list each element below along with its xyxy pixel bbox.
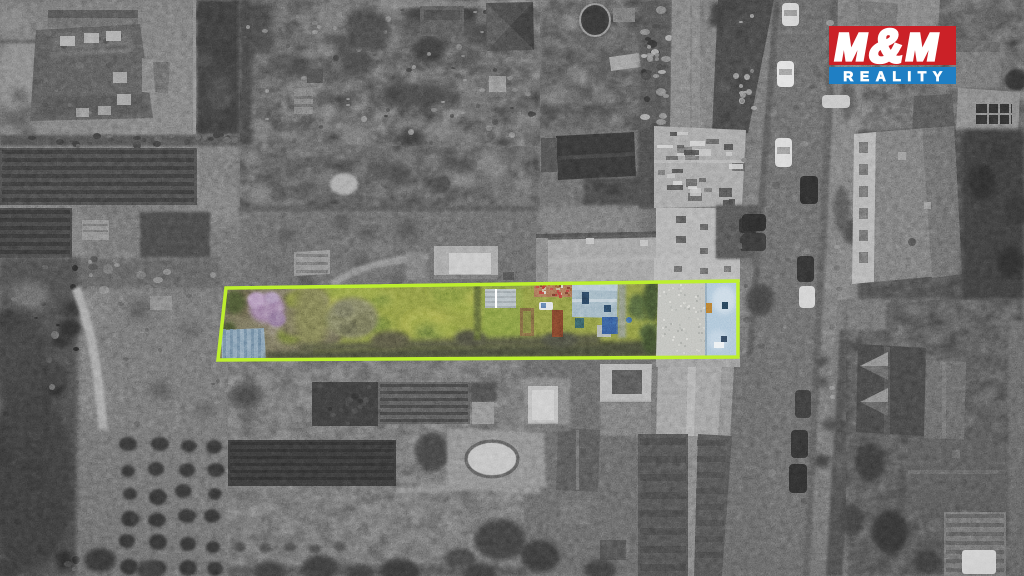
svg-text:REALITY: REALITY (843, 68, 948, 84)
